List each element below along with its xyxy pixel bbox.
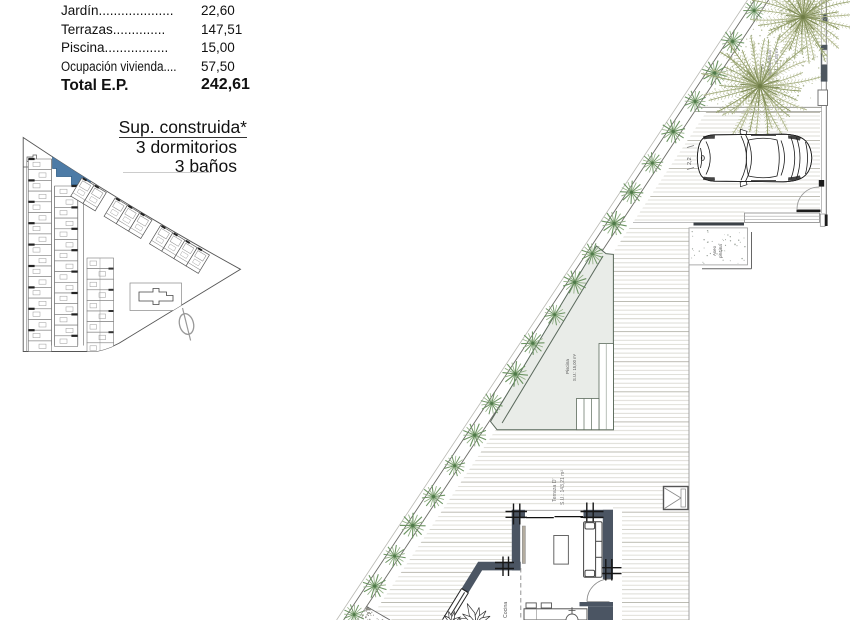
svg-text:Piscina: Piscina <box>565 359 570 374</box>
svg-text:piscina: piscina <box>718 244 723 258</box>
svg-text:Terraza D': Terraza D' <box>552 479 558 502</box>
svg-text:Cocina: Cocina <box>503 602 509 618</box>
svg-text:2,2: 2,2 <box>687 157 693 165</box>
svg-text:S.U.: 143,21 m²: S.U.: 143,21 m² <box>560 470 566 505</box>
svg-text:Aseo: Aseo <box>712 245 717 256</box>
svg-text:S.U.: 15,00 m²: S.U.: 15,00 m² <box>572 353 577 381</box>
